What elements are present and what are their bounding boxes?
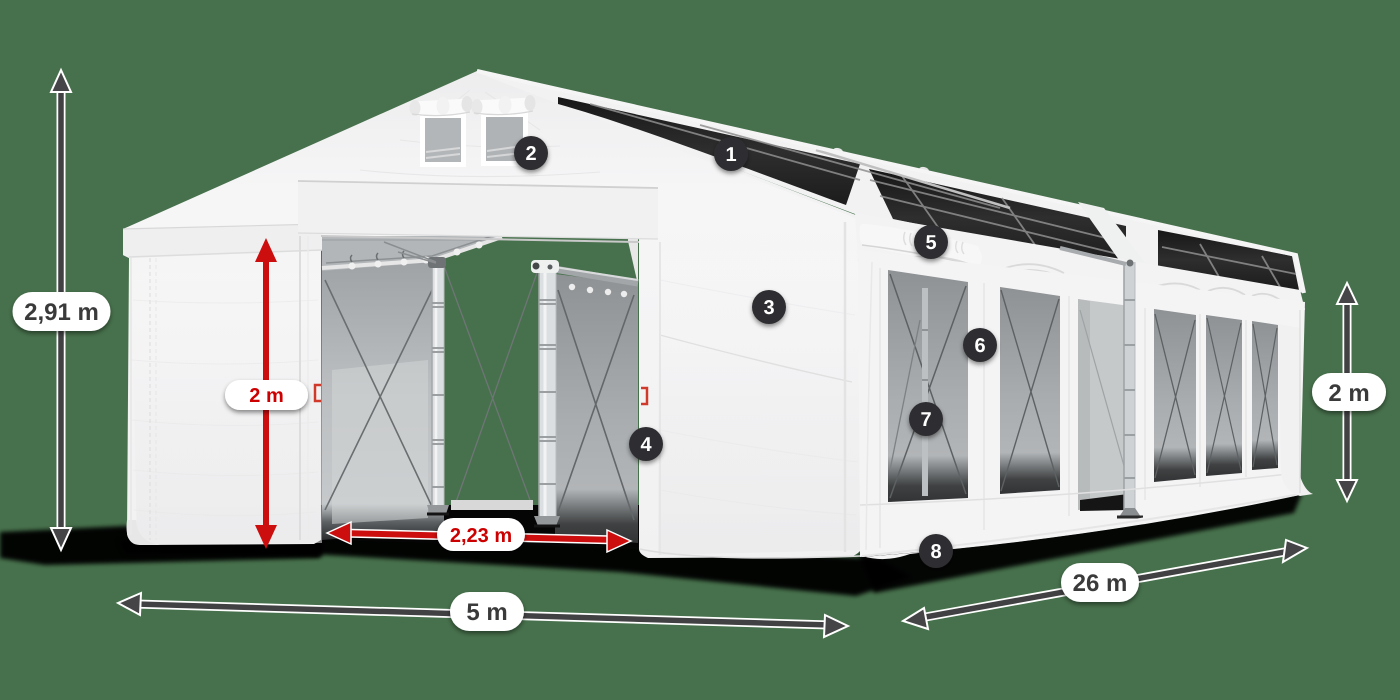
svg-text:26 m: 26 m — [1073, 570, 1128, 597]
svg-text:1: 1 — [725, 144, 736, 166]
svg-text:7: 7 — [920, 409, 931, 431]
svg-text:2: 2 — [525, 143, 536, 165]
svg-text:2 m: 2 m — [1328, 380, 1369, 407]
svg-text:2,91 m: 2,91 m — [24, 299, 99, 326]
svg-text:8: 8 — [930, 541, 941, 563]
svg-text:5 m: 5 m — [466, 599, 507, 626]
svg-text:6: 6 — [974, 335, 985, 357]
svg-text:2,23 m: 2,23 m — [450, 525, 512, 547]
svg-text:2 m: 2 m — [249, 385, 283, 407]
svg-text:3: 3 — [763, 297, 774, 319]
svg-text:5: 5 — [925, 232, 936, 254]
svg-text:4: 4 — [640, 434, 652, 456]
